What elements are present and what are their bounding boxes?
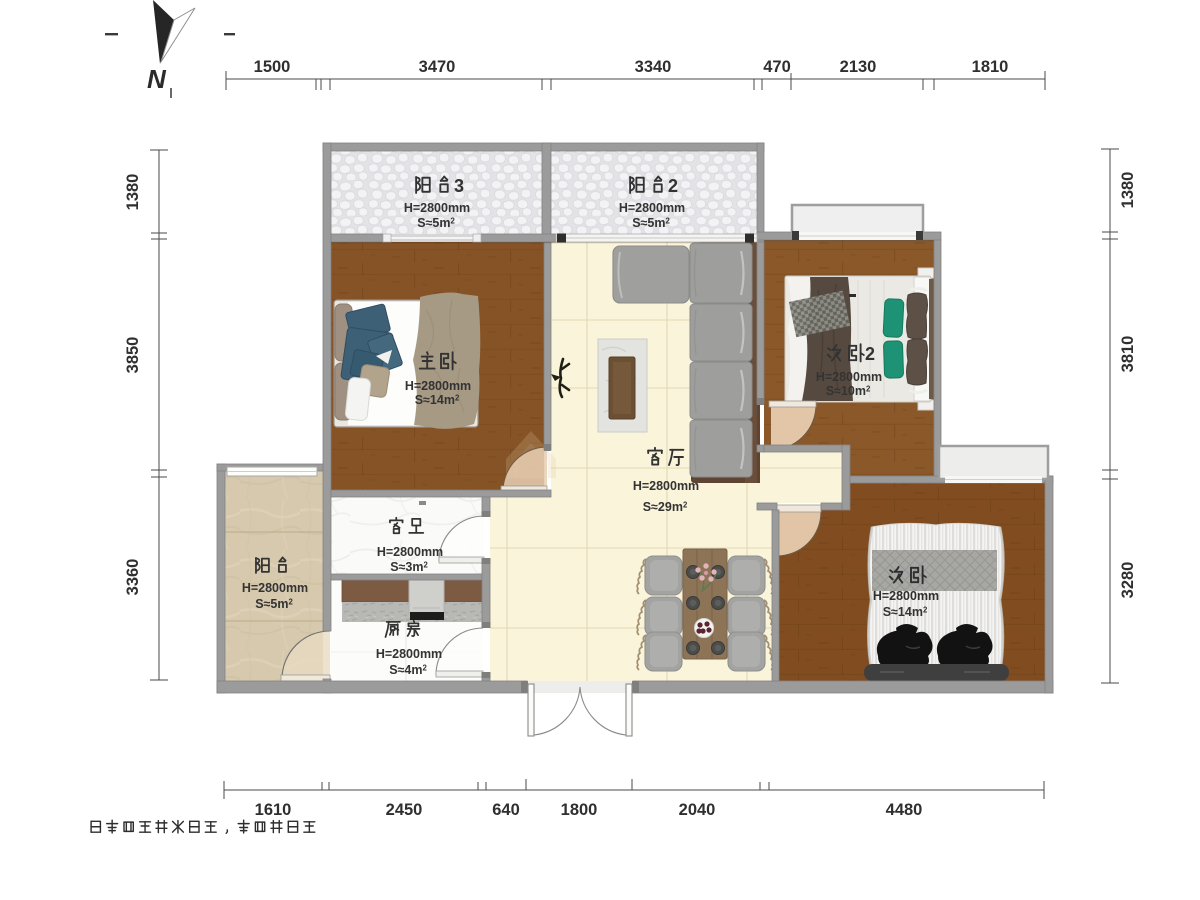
svg-text:2: 2 [668,176,678,196]
svg-text:S≈14m2: S≈14m2 [415,393,460,407]
svg-text:S≈4m2: S≈4m2 [389,663,427,677]
svg-text:2040: 2040 [679,801,716,819]
svg-text:S≈5m2: S≈5m2 [417,216,455,230]
svg-text:H=2800mm: H=2800mm [816,370,882,384]
svg-text:H=2800mm: H=2800mm [376,647,442,661]
svg-text:1380: 1380 [124,174,142,211]
svg-text:S≈14m2: S≈14m2 [883,605,928,619]
svg-text:S≈29m2: S≈29m2 [643,500,688,514]
svg-text:1810: 1810 [972,58,1009,76]
svg-text:H=2800mm: H=2800mm [404,201,470,215]
svg-text:3810: 3810 [1119,336,1137,373]
svg-text:1610: 1610 [255,801,292,819]
svg-text:4480: 4480 [886,801,923,819]
svg-text:H=2800mm: H=2800mm [405,379,471,393]
svg-text:1500: 1500 [254,58,291,76]
svg-text:1800: 1800 [561,801,598,819]
svg-text:H=2800mm: H=2800mm [377,545,443,559]
svg-text:3: 3 [454,176,464,196]
svg-text:470: 470 [763,58,791,76]
svg-text:S≈10m2: S≈10m2 [826,384,871,398]
svg-text:3850: 3850 [124,337,142,374]
svg-text:1380: 1380 [1119,172,1137,209]
svg-text:2130: 2130 [840,58,877,76]
svg-text:N: N [147,64,167,94]
svg-text:H=2800mm: H=2800mm [873,589,939,603]
svg-text:H=2800mm: H=2800mm [633,479,699,493]
svg-text:3360: 3360 [124,559,142,596]
svg-text:H=2800mm: H=2800mm [619,201,685,215]
svg-text:3280: 3280 [1119,562,1137,599]
svg-text:640: 640 [492,801,520,819]
svg-text:2450: 2450 [386,801,423,819]
svg-text:S≈5m2: S≈5m2 [255,597,293,611]
svg-text:S≈5m2: S≈5m2 [632,216,670,230]
svg-text:S≈3m2: S≈3m2 [390,560,428,574]
svg-text:3470: 3470 [419,58,456,76]
svg-text:3340: 3340 [635,58,672,76]
svg-text:H=2800mm: H=2800mm [242,581,308,595]
svg-text:2: 2 [865,344,875,364]
